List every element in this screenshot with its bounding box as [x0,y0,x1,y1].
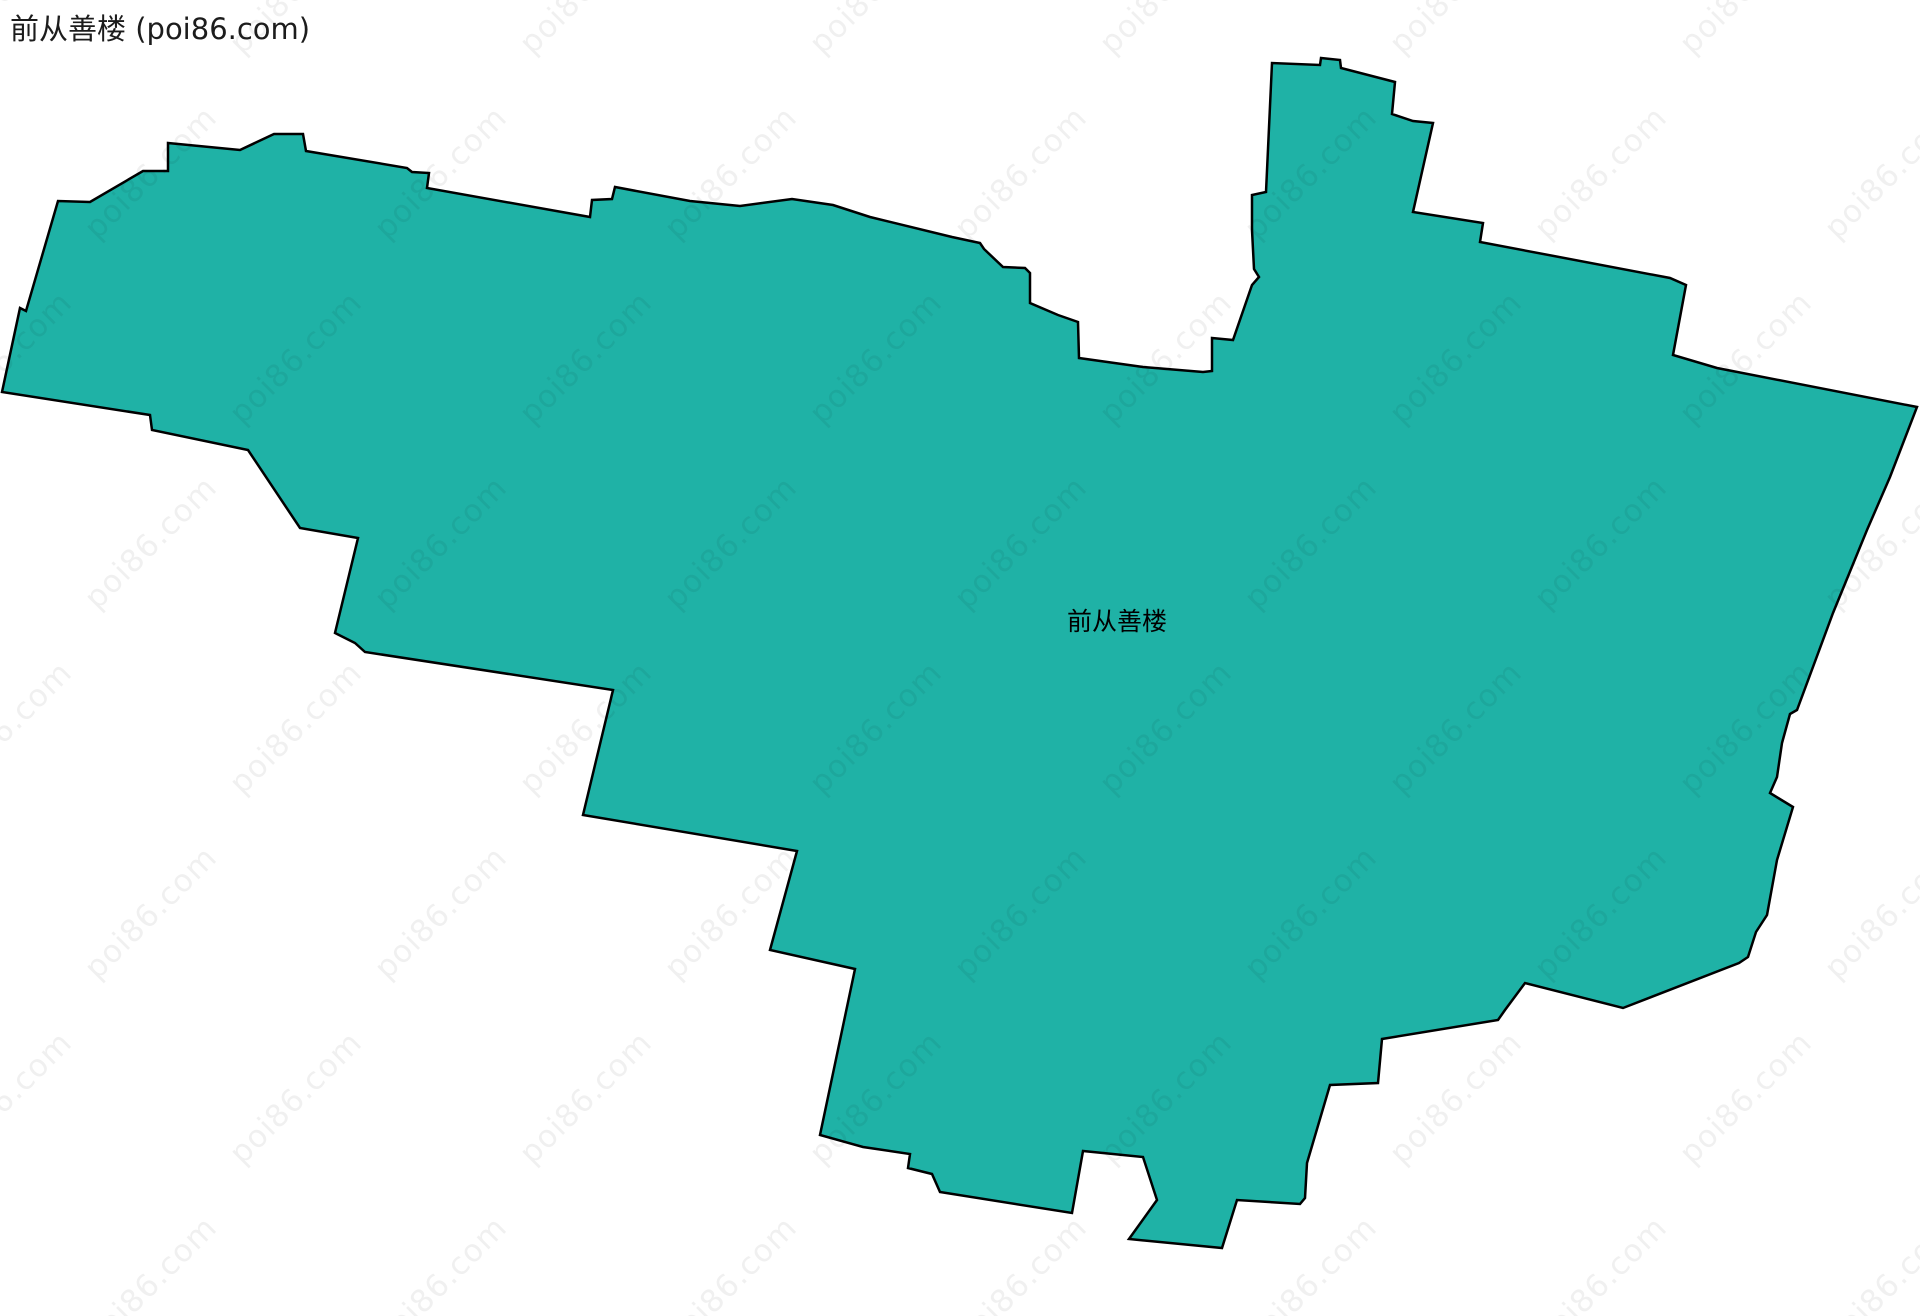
map-canvas: poi86.compoi86.compoi86.compoi86.compoi8… [0,0,1920,1316]
map-title: 前从善楼 (poi86.com) [10,6,310,48]
region-shape [2,58,1917,1248]
boundary-map [0,0,1920,1316]
region-label: 前从善楼 [1067,602,1167,638]
